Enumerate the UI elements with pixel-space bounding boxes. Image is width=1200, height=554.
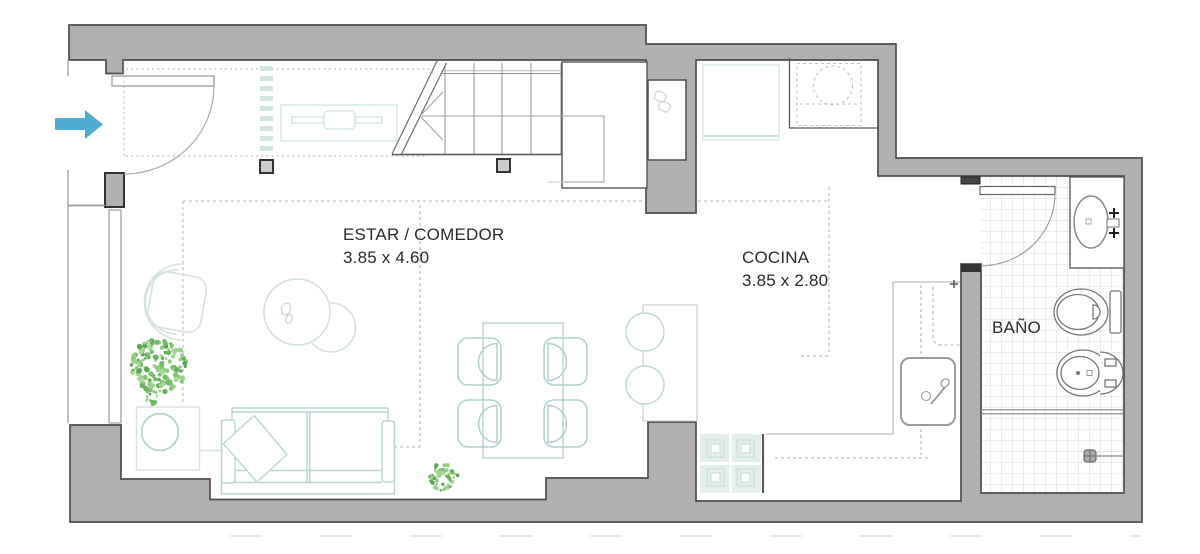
svg-text:ESTAR / COMEDOR: ESTAR / COMEDOR	[343, 225, 504, 244]
svg-text:BAÑO: BAÑO	[992, 318, 1041, 337]
svg-text:3.85 x 4.60: 3.85 x 4.60	[343, 248, 429, 267]
svg-text:3.85 x 2.80: 3.85 x 2.80	[742, 271, 828, 290]
svg-text:COCINA: COCINA	[742, 248, 810, 267]
